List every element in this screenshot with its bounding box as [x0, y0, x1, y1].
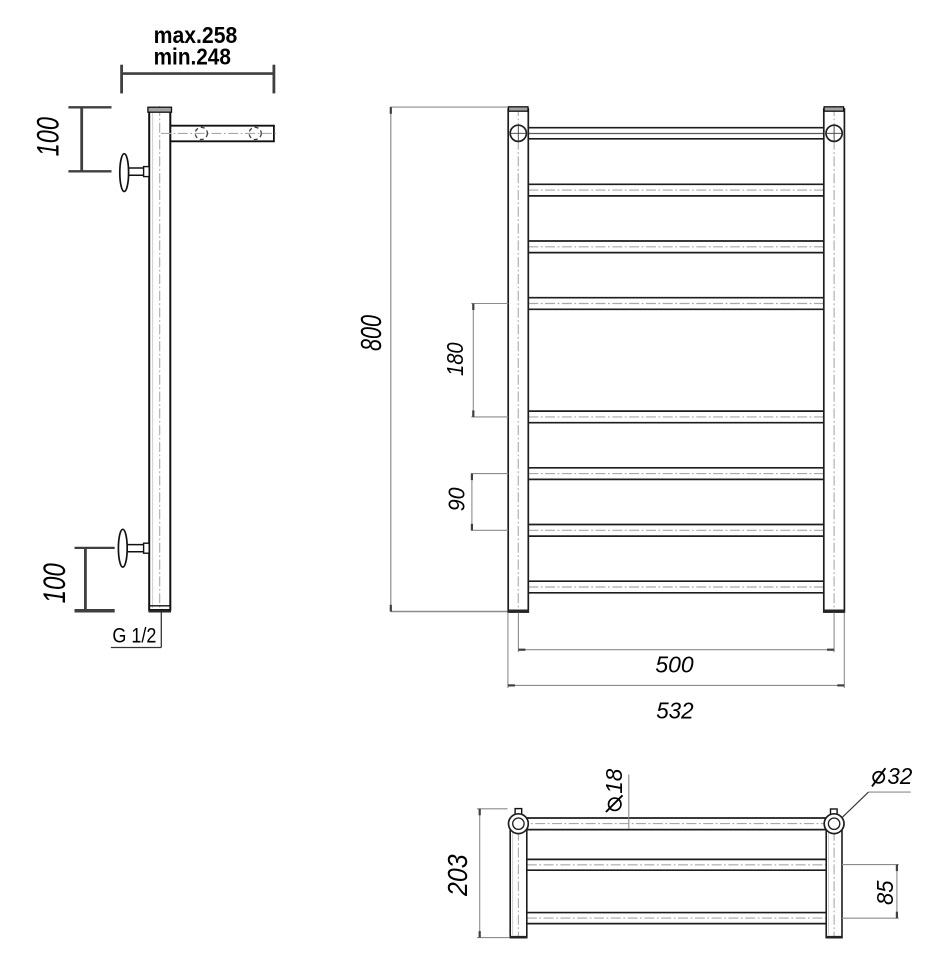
svg-text:532: 532 [656, 697, 694, 723]
svg-text:32: 32 [887, 763, 912, 789]
svg-text:min.248: min.248 [154, 44, 231, 70]
svg-text:G 1/2: G 1/2 [112, 625, 156, 648]
svg-text:90: 90 [444, 487, 470, 511]
svg-text:85: 85 [872, 880, 898, 905]
svg-text:100: 100 [29, 117, 65, 157]
svg-text:180: 180 [442, 342, 468, 376]
svg-text:100: 100 [36, 563, 72, 604]
svg-text:500: 500 [655, 652, 694, 678]
svg-text:800: 800 [356, 315, 388, 351]
svg-text:18: 18 [601, 769, 627, 794]
svg-text:203: 203 [442, 854, 473, 897]
